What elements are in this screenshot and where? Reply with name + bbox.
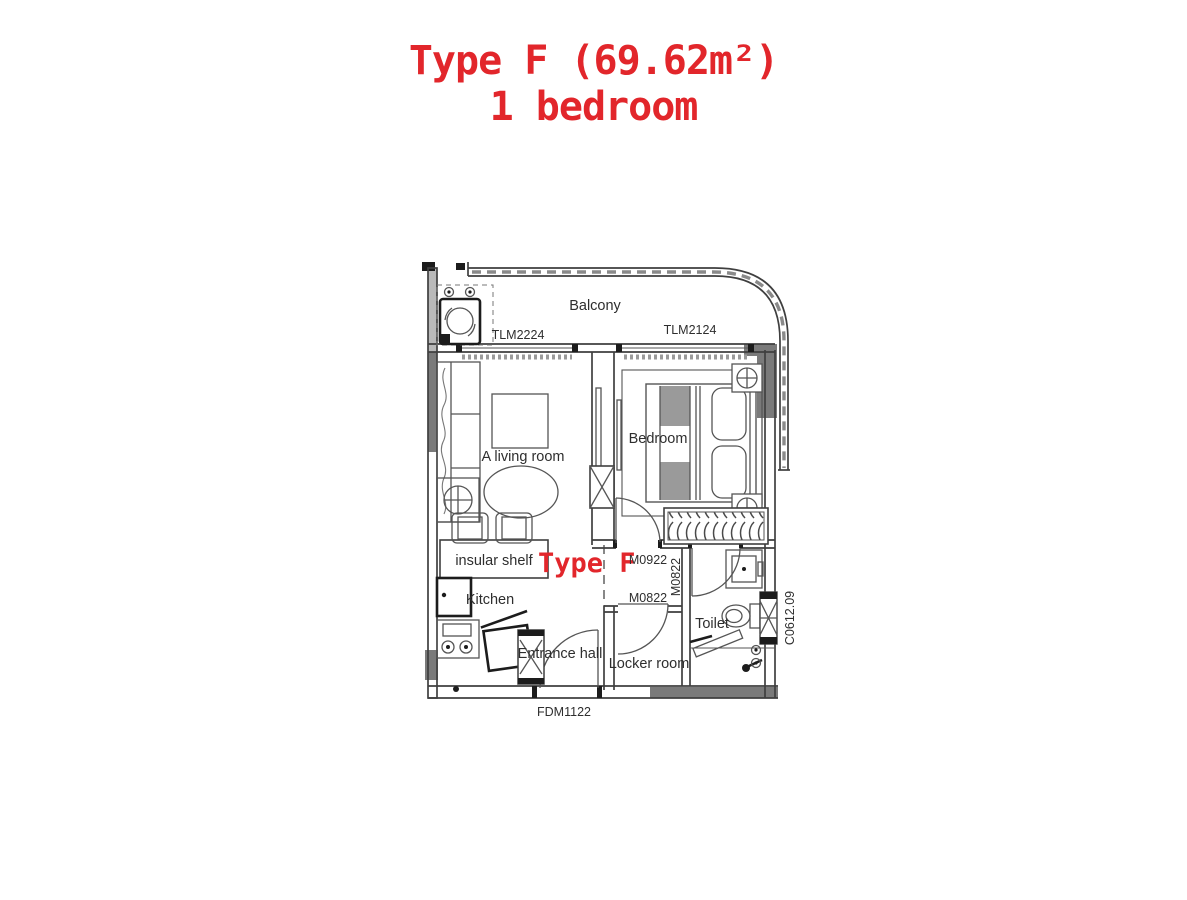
toilet-label: Toilet (695, 616, 729, 632)
toilet-window-code: C0612.09 (783, 591, 797, 645)
entrance-door-code: FDM1122 (537, 705, 591, 719)
entrance-hall-label: Entrance hall (518, 646, 603, 662)
washing-machine-corner (441, 334, 450, 343)
floor-plan-drawing: Balcony TLM2224 TLM2124 A living room Be… (0, 0, 1187, 900)
door-code-m0822-vertical: M0822 (669, 558, 683, 596)
floor-lamp (437, 478, 479, 522)
sofa-throw-pattern (441, 368, 446, 514)
locker-room-label: Locker room (609, 656, 690, 672)
door-code-m0922: M0922 (629, 553, 667, 567)
toilet-door-arc (692, 548, 740, 596)
bedroom-door-arc (616, 498, 660, 542)
burner-1-dot (446, 645, 450, 649)
blanket-stripe-bottom (660, 462, 690, 500)
toilet-window-bar-top (760, 592, 777, 599)
side-table-oval (484, 466, 558, 518)
window-code-left: TLM2224 (492, 328, 545, 342)
balcony (437, 285, 493, 345)
balcony-label: Balcony (569, 298, 621, 314)
window-cap-2 (572, 344, 578, 352)
entrance-duct-cap-top (518, 630, 544, 636)
locker-door-arc (618, 604, 668, 654)
stove-panel (443, 624, 471, 636)
washing-machine-marks (445, 308, 475, 336)
faucet-dot-2 (468, 290, 471, 293)
wardrobe-hangers (668, 512, 764, 540)
tv-panel-bedroom (617, 400, 621, 470)
bar-stool-2-inner (502, 517, 526, 539)
wall-fill-left-bottom (425, 650, 438, 680)
faucet-dot-1 (447, 290, 450, 293)
vanity-sink (726, 550, 763, 588)
tv-panel-living (596, 388, 601, 468)
fridge-handle (442, 593, 446, 597)
door-code-m0822: M0822 (629, 591, 667, 605)
shower-door-rail (690, 636, 712, 642)
toilet-window (760, 592, 777, 644)
blanket-stripe-top (660, 386, 690, 426)
wall-fill-left-top (428, 268, 437, 352)
nightstand-top (732, 364, 762, 392)
toilet-tank (750, 604, 760, 628)
shower-control-2-dot (754, 661, 757, 664)
kitchen-label: Kitchen (466, 592, 514, 608)
toilet-room (690, 550, 777, 672)
bar-stool-2 (496, 513, 532, 543)
bar-stool-1 (452, 513, 488, 543)
vanity-drain (742, 567, 746, 571)
toilet-window-bar-bottom (760, 637, 777, 644)
washing-machine-drum (447, 308, 473, 334)
window-cap-4 (748, 344, 754, 352)
coffee-table (492, 394, 548, 448)
shaft-column (590, 466, 614, 508)
shower-control-1-dot (754, 648, 757, 651)
bedroom-furniture (622, 364, 768, 544)
insular-shelf-label: insular shelf (455, 553, 533, 569)
stove (437, 620, 479, 658)
bedroom-label: Bedroom (629, 431, 688, 447)
entrance-duct-cap-bottom (518, 678, 544, 684)
wardrobe (664, 508, 768, 544)
shower-door (693, 630, 743, 657)
bedroom-door (616, 498, 660, 543)
entrance-jamb-left (532, 686, 537, 698)
type-f-label: Type F (538, 548, 636, 579)
balcony-window-wall (428, 344, 775, 357)
living-room-label: A living room (481, 449, 564, 465)
toilet-door (692, 548, 740, 596)
living-room (437, 362, 621, 522)
locker-door (618, 604, 668, 654)
wall-fill-bottom (650, 687, 778, 698)
door-stop (453, 686, 459, 692)
wall-fill-left-mid (428, 352, 437, 452)
column-marker-2 (456, 263, 465, 270)
burner-2-dot (464, 645, 468, 649)
window-cap-3 (616, 344, 622, 352)
tv-console-living (596, 388, 621, 470)
shower-door-panel (693, 630, 743, 657)
floor-plan-page: Type F (69.62m²) 1 bedroom (0, 0, 1187, 900)
window-code-right: TLM2124 (664, 323, 717, 337)
